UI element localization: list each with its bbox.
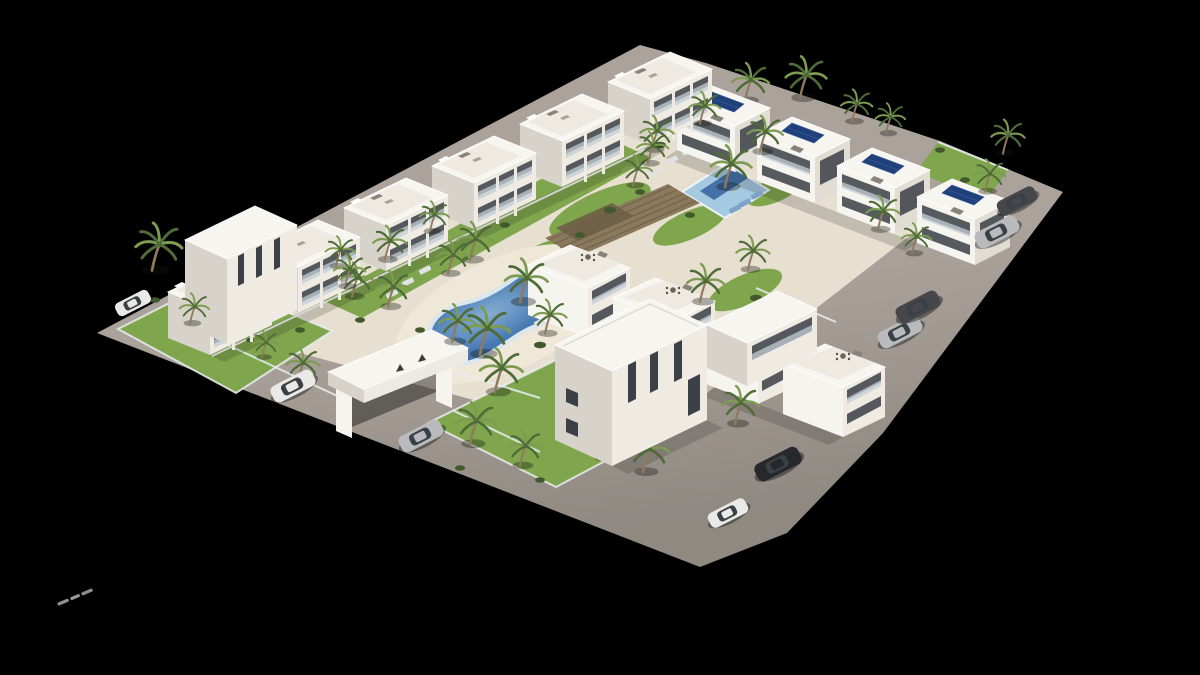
shrub	[415, 327, 425, 333]
shrub	[455, 465, 465, 471]
shrub	[635, 189, 645, 195]
palm-tree	[991, 120, 1024, 157]
shrub	[295, 327, 305, 333]
shrub	[575, 232, 585, 238]
shrub	[685, 212, 695, 218]
shrub	[535, 477, 545, 483]
shrub	[604, 207, 616, 214]
aerial-render	[0, 0, 1200, 675]
shrub	[935, 147, 945, 153]
shrub	[500, 222, 510, 228]
watermark	[57, 588, 93, 606]
shrub	[960, 177, 970, 183]
shrub	[534, 342, 546, 349]
render-stage	[0, 0, 1200, 675]
shrub	[355, 317, 365, 323]
palm-tree	[136, 223, 182, 275]
